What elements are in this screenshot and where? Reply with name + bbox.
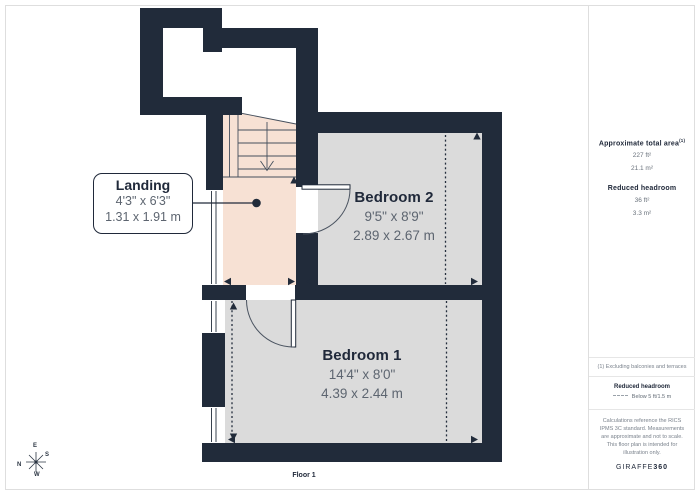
legend: Reduced headroom Below 5 ft/1.5 m	[589, 384, 695, 400]
sidebar-footer: (1) Excluding balconies and terraces Red…	[589, 357, 695, 471]
compass-icon: E S N W	[12, 439, 60, 487]
brand-name: GIRAFFE	[616, 464, 653, 471]
compass-north-label: N	[17, 462, 21, 468]
bedroom-1-door-leaf	[291, 300, 295, 347]
total-area-metric: 21.1 m²	[589, 163, 695, 176]
brand-suffix: 360	[653, 464, 668, 471]
separator	[589, 376, 695, 377]
room-dims-metric: 1.31 x 1.91 m	[94, 209, 192, 225]
bedroom-1-floor	[225, 300, 482, 443]
total-area-stat: Approximate total area(1) 227 ft² 21.1 m…	[589, 138, 695, 175]
legend-item: Below 5 ft/1.5 m	[589, 394, 695, 400]
bedroom-2-door-leaf	[302, 185, 350, 189]
floor-label: Floor 1	[254, 472, 354, 479]
room-dims-imperial: 4'3" x 6'3"	[94, 193, 192, 209]
reduced-headroom-imperial: 36 ft²	[589, 195, 695, 208]
total-area-imperial: 227 ft²	[589, 150, 695, 163]
separator	[589, 357, 695, 358]
legend-title: Reduced headroom	[589, 384, 695, 390]
total-area-title: Approximate total area(1)	[589, 138, 695, 147]
reduced-headroom-stat: Reduced headroom 36 ft² 3.3 m²	[589, 185, 695, 220]
reduced-headroom-title: Reduced headroom	[589, 185, 695, 192]
compass-west-label: W	[34, 472, 40, 478]
brand-logo: GIRAFFE360	[589, 464, 695, 471]
floor-plan	[0, 0, 588, 495]
legend-item-label: Below 5 ft/1.5 m	[632, 394, 671, 400]
total-area-label: Approximate total area	[599, 140, 679, 147]
dashed-line-sample	[613, 395, 628, 396]
room-label-landing-callout: Landing 4'3" x 6'3" 1.31 x 1.91 m	[93, 173, 193, 234]
separator	[589, 409, 695, 410]
compass-east-label: E	[33, 443, 37, 449]
floorplan-card: Bedroom 2 9'5" x 8'9" 2.89 x 2.67 m Bedr…	[0, 0, 700, 495]
room-name: Landing	[94, 177, 192, 193]
area-footnote: (1) Excluding balconies and terraces	[591, 364, 693, 370]
sidebar: Approximate total area(1) 227 ft² 21.1 m…	[588, 5, 695, 490]
reduced-headroom-metric: 3.3 m²	[589, 208, 695, 221]
footnote-marker: (1)	[679, 138, 685, 143]
compass-south-label: S	[45, 452, 49, 458]
area-stats: Approximate total area(1) 227 ft² 21.1 m…	[589, 5, 695, 220]
landing-floor	[223, 113, 296, 285]
bedroom-2-floor	[318, 133, 482, 285]
disclaimer-text: Calculations reference the RICS IPMS 3C …	[598, 417, 686, 457]
